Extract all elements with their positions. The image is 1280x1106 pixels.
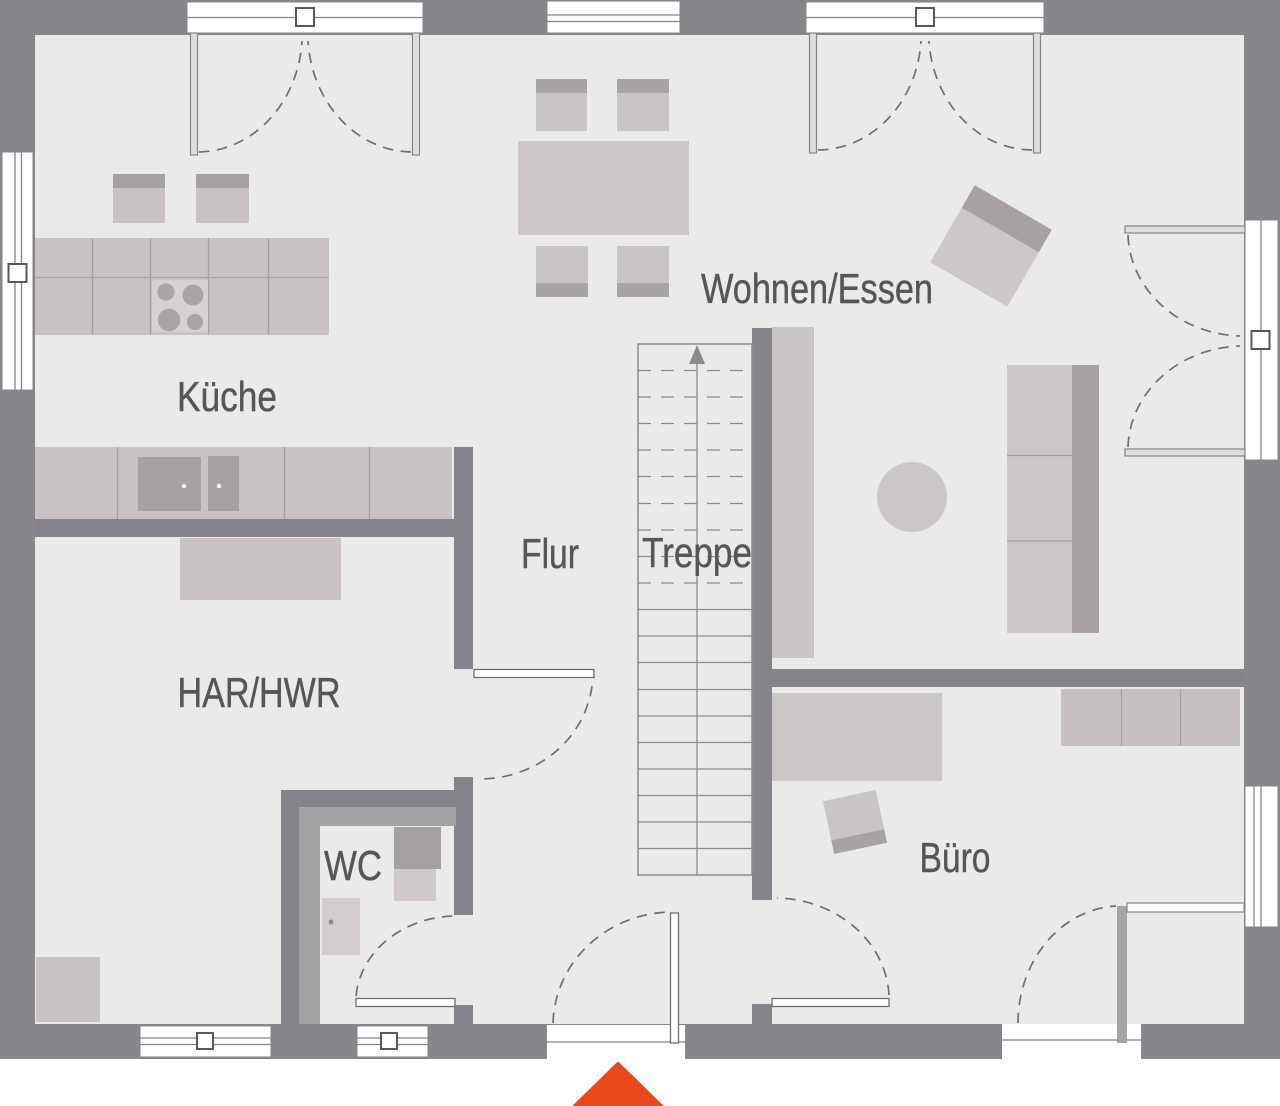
svg-text:Treppe: Treppe [642,529,752,576]
svg-text:WC: WC [324,842,382,889]
svg-text:HAR/HWR: HAR/HWR [177,669,340,716]
svg-text:Küche: Küche [177,373,277,420]
svg-text:Wohnen/Essen: Wohnen/Essen [701,265,933,312]
svg-text:Büro: Büro [919,834,990,881]
svg-text:Flur: Flur [521,530,579,577]
